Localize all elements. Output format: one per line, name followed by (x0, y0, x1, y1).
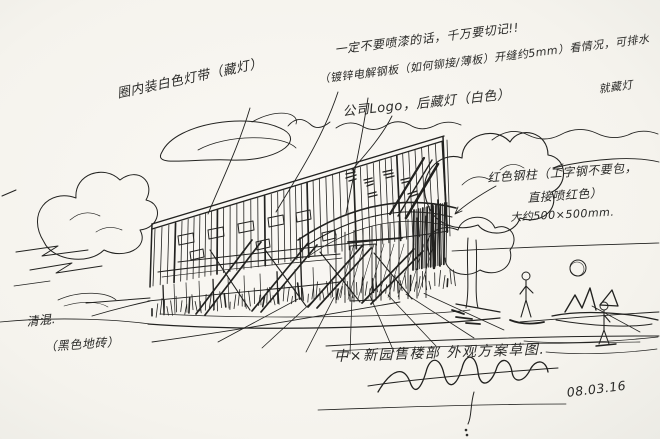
sun-circle (570, 260, 586, 276)
left-steps (14, 246, 150, 303)
signature-scribble (368, 357, 558, 436)
right-tree (424, 133, 563, 324)
pedestrian-figures (510, 272, 616, 346)
facade-logo-scribbles (346, 170, 418, 197)
grass-scribbles (152, 270, 455, 318)
facade-window-rects (178, 210, 336, 260)
sketch-page: 圈内装白色灯带（藏灯） 一定不要喷漆的话，千万要切记!! （镀锌电解钢板（如何铆… (0, 0, 660, 439)
cloud-scribbles-left (2, 113, 296, 307)
